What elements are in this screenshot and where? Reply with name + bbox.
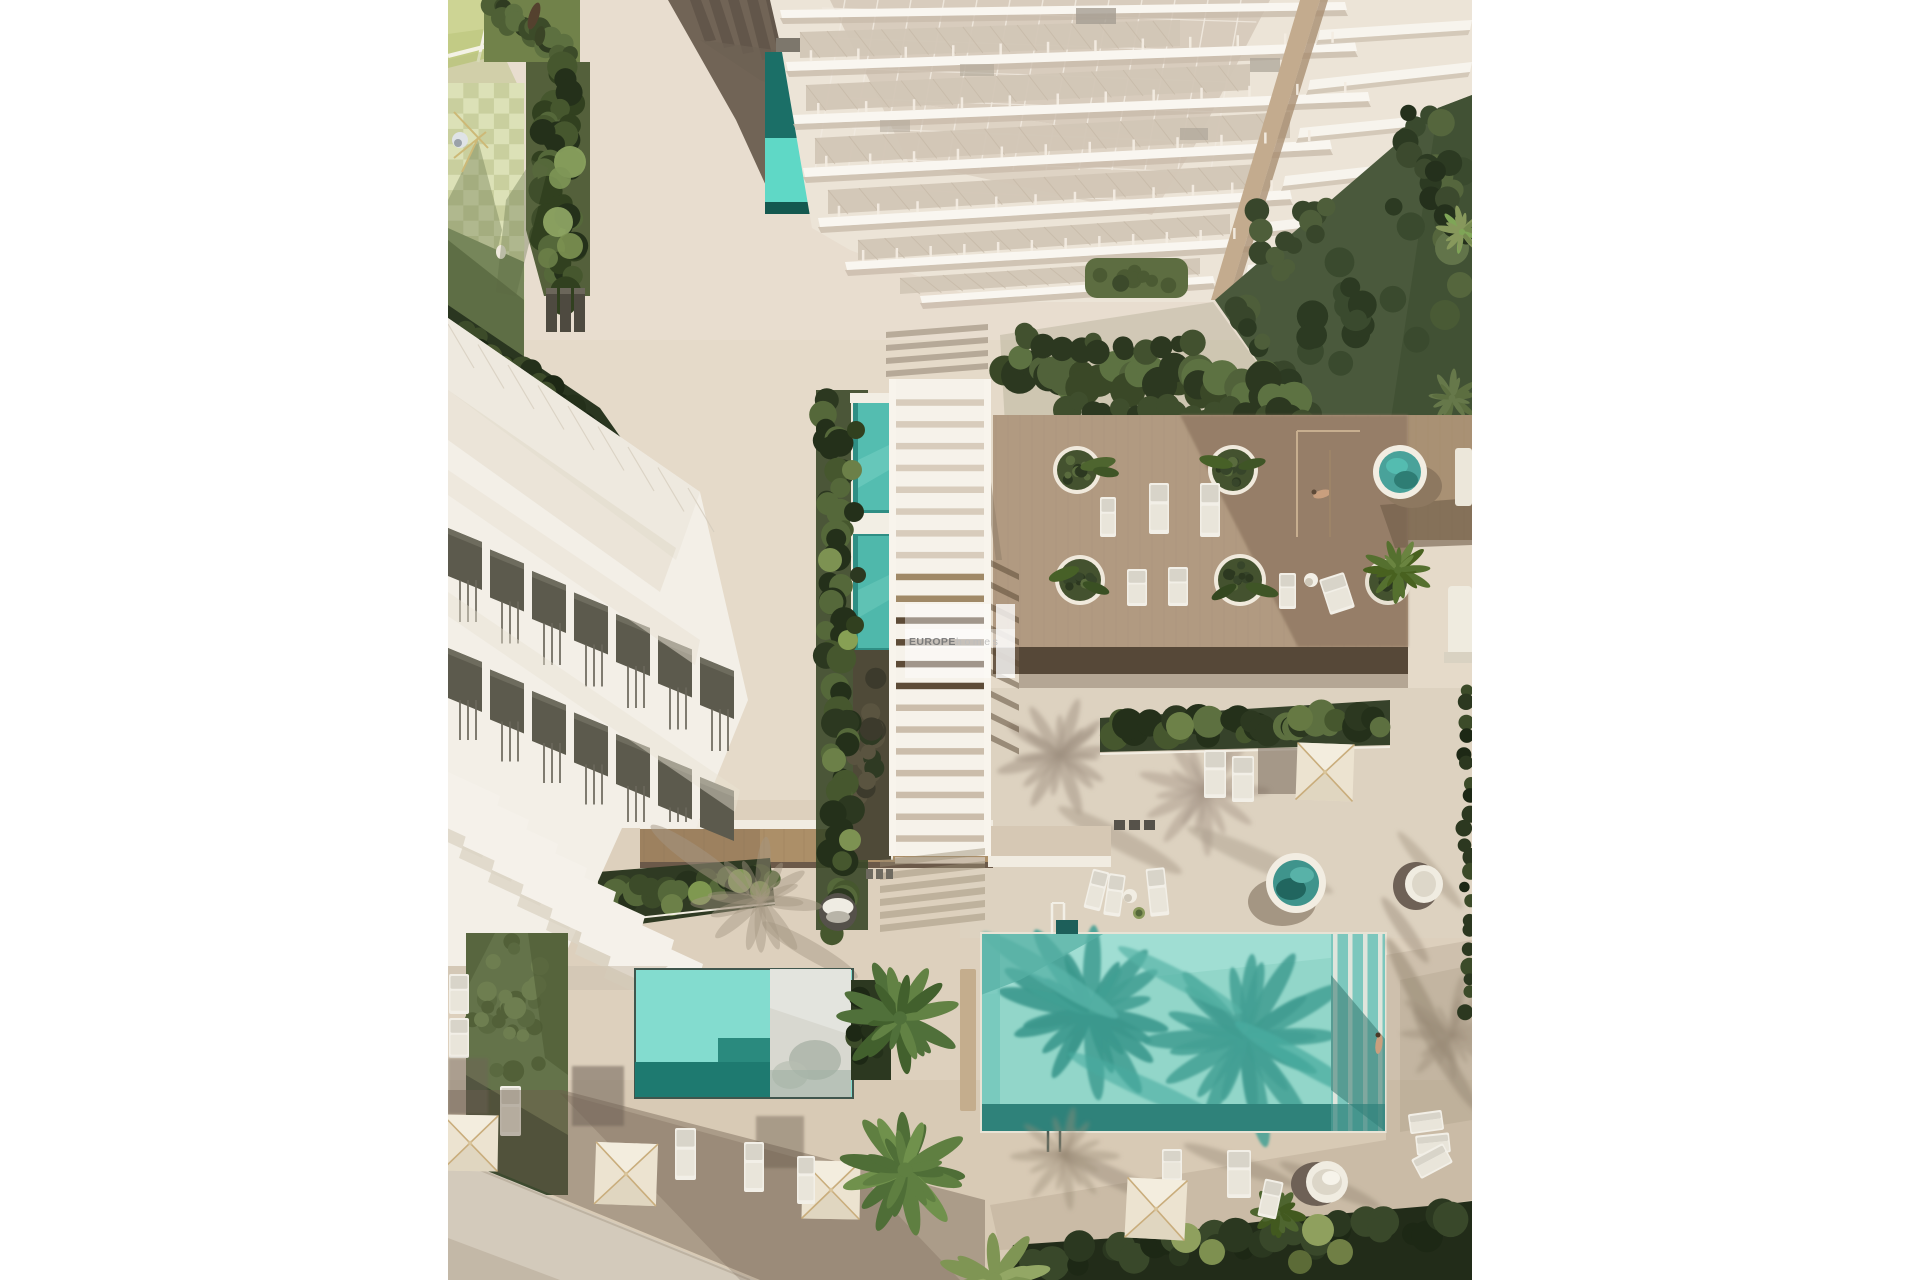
svg-text:homes: homes [956, 636, 1001, 648]
svg-text:EUROPE: EUROPE [909, 636, 956, 648]
